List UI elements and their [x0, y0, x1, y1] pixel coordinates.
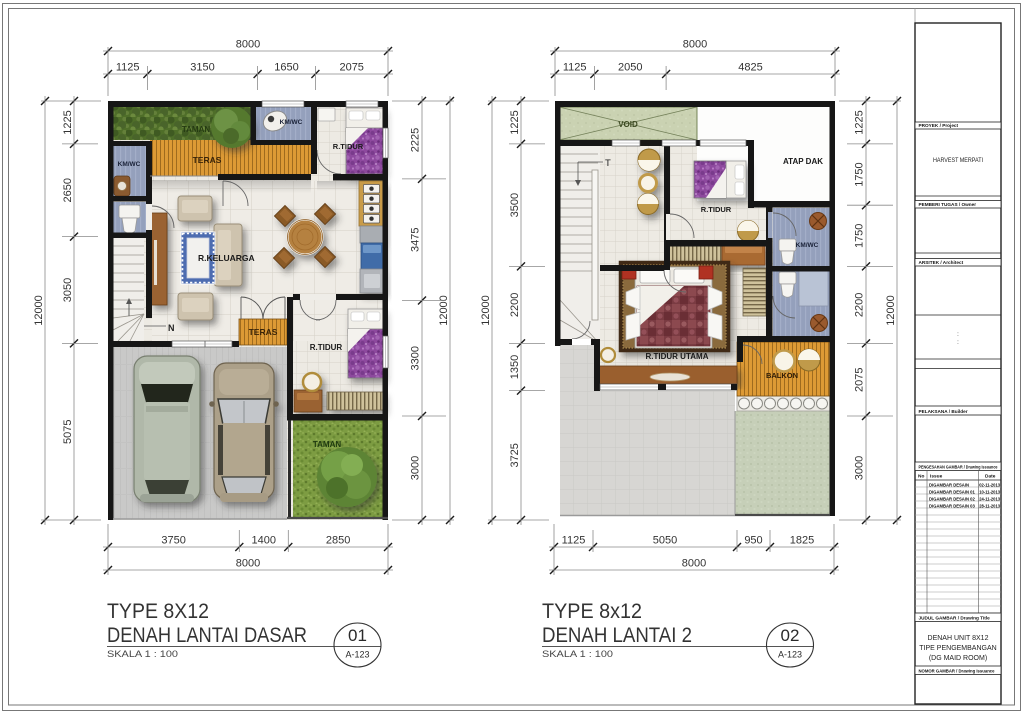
- svg-text:1125: 1125: [563, 62, 587, 74]
- svg-text:TYPE 8X12: TYPE 8X12: [107, 600, 209, 623]
- svg-text:R.TIDUR: R.TIDUR: [333, 142, 364, 151]
- svg-text:1825: 1825: [790, 535, 814, 547]
- svg-text:01: 01: [348, 626, 367, 645]
- svg-text:R.KELUARGA: R.KELUARGA: [198, 253, 255, 263]
- svg-text:3475: 3475: [410, 227, 422, 251]
- svg-text:10-11-2013: 10-11-2013: [979, 489, 1000, 494]
- svg-text:DENAH LANTAI DASAR: DENAH LANTAI DASAR: [107, 624, 307, 647]
- svg-text:1350: 1350: [509, 355, 521, 379]
- svg-text:TAMAN: TAMAN: [182, 125, 211, 134]
- svg-text:3000: 3000: [854, 456, 866, 480]
- svg-text:DENAH UNIT 8X12: DENAH UNIT 8X12: [928, 635, 989, 642]
- svg-text:R.TIDUR UTAMA: R.TIDUR UTAMA: [646, 352, 709, 361]
- svg-text:VOID: VOID: [618, 120, 638, 129]
- svg-text:Issue: Issue: [930, 474, 943, 480]
- svg-text:3150: 3150: [190, 62, 214, 74]
- svg-text:1750: 1750: [854, 224, 866, 248]
- svg-text:N: N: [168, 323, 175, 333]
- svg-text:1225: 1225: [509, 110, 521, 134]
- svg-text:1650: 1650: [274, 62, 298, 74]
- svg-text:(DG MAID ROOM): (DG MAID ROOM): [929, 655, 987, 662]
- svg-text:1225: 1225: [854, 110, 866, 134]
- svg-text:A-123: A-123: [778, 650, 802, 660]
- svg-text:T: T: [605, 158, 611, 169]
- svg-text:TYPE 8x12: TYPE 8x12: [542, 600, 642, 623]
- svg-text:24-11-2013: 24-11-2013: [979, 496, 1000, 501]
- svg-text:BALKON: BALKON: [766, 371, 798, 380]
- svg-text:DENAH LANTAI 2: DENAH LANTAI 2: [542, 624, 692, 647]
- svg-text:2200: 2200: [854, 293, 866, 317]
- svg-text:3750: 3750: [161, 535, 185, 547]
- svg-text:2200: 2200: [509, 293, 521, 317]
- svg-text:5075: 5075: [62, 419, 74, 443]
- svg-text:8000: 8000: [236, 39, 260, 51]
- svg-text:DIGAMBAR DESAIN: DIGAMBAR DESAIN: [929, 482, 969, 487]
- svg-text:R.TIDUR: R.TIDUR: [701, 205, 732, 214]
- svg-text:8000: 8000: [236, 558, 260, 570]
- svg-text:950: 950: [744, 535, 762, 547]
- svg-text:KM/WC: KM/WC: [118, 161, 141, 168]
- svg-text:DIGAMBAR DESAIN 01: DIGAMBAR DESAIN 01: [929, 489, 976, 494]
- svg-text:12000: 12000: [885, 295, 897, 326]
- svg-text:KM/WC: KM/WC: [280, 119, 303, 126]
- svg-text:PELAKSANA / Builder: PELAKSANA / Builder: [919, 409, 968, 414]
- svg-text:2850: 2850: [326, 535, 350, 547]
- svg-text:TERAS: TERAS: [249, 327, 278, 337]
- svg-text:02-11-2013: 02-11-2013: [979, 482, 1000, 487]
- svg-text:ARSITEK / Architect: ARSITEK / Architect: [919, 260, 964, 265]
- svg-text:3300: 3300: [410, 346, 422, 370]
- svg-text:3725: 3725: [509, 443, 521, 467]
- svg-text:TIPE PENGEMBANGAN: TIPE PENGEMBANGAN: [919, 645, 996, 652]
- svg-text:2225: 2225: [410, 128, 422, 152]
- svg-text:JUDUL GAMBAR / Drawing Title: JUDUL GAMBAR / Drawing Title: [919, 616, 991, 621]
- svg-text:12000: 12000: [480, 295, 492, 326]
- svg-text:3500: 3500: [509, 193, 521, 217]
- svg-text:1400: 1400: [252, 535, 276, 547]
- svg-text:PROYEK / Project: PROYEK / Project: [919, 123, 959, 128]
- svg-text:28-11-2013: 28-11-2013: [979, 503, 1000, 508]
- svg-text:DIGAMBAR DESAIN 02: DIGAMBAR DESAIN 02: [929, 496, 976, 501]
- svg-text:PENGESAHAN GAMBAR / Drawing I: PENGESAHAN GAMBAR / Drawing Issuance: [919, 465, 998, 470]
- svg-text:4825: 4825: [738, 62, 762, 74]
- svg-text:1125: 1125: [116, 62, 140, 74]
- svg-text:Date: Date: [985, 474, 996, 480]
- svg-text:SKALA 1 : 100: SKALA 1 : 100: [542, 649, 613, 660]
- svg-text:SKALA 1 : 100: SKALA 1 : 100: [107, 649, 178, 660]
- svg-text:R.TIDUR: R.TIDUR: [310, 343, 343, 352]
- svg-text:No: No: [918, 474, 924, 480]
- svg-text:A-123: A-123: [345, 650, 369, 660]
- svg-text:ATAP DAK: ATAP DAK: [783, 157, 823, 166]
- svg-text:KM/WC: KM/WC: [796, 242, 819, 249]
- svg-text:1225: 1225: [62, 110, 74, 134]
- svg-text:12000: 12000: [438, 295, 450, 326]
- svg-text:5050: 5050: [653, 535, 677, 547]
- svg-text:8000: 8000: [682, 558, 706, 570]
- svg-text:2050: 2050: [618, 62, 642, 74]
- svg-text:HARVEST MERPATI: HARVEST MERPATI: [933, 157, 983, 164]
- svg-text:2075: 2075: [339, 62, 363, 74]
- svg-text:TERAS: TERAS: [193, 155, 222, 165]
- svg-text:02: 02: [781, 626, 800, 645]
- svg-text:1750: 1750: [854, 162, 866, 186]
- svg-text:DIGAMBAR DESAIN 03: DIGAMBAR DESAIN 03: [929, 503, 976, 508]
- svg-text:1125: 1125: [562, 535, 586, 547]
- svg-text:12000: 12000: [33, 295, 45, 326]
- svg-text:NOMOR GAMBAR / Drawing Issuanc: NOMOR GAMBAR / Drawing Issuance: [919, 669, 995, 674]
- svg-text:PEMBERI TUGAS / Owner: PEMBERI TUGAS / Owner: [919, 202, 977, 207]
- svg-text:3000: 3000: [410, 456, 422, 480]
- svg-text:TAMAN: TAMAN: [313, 440, 342, 449]
- svg-text:2650: 2650: [62, 178, 74, 202]
- svg-text:3050: 3050: [62, 278, 74, 302]
- svg-text:8000: 8000: [683, 39, 707, 51]
- svg-text:2075: 2075: [854, 367, 866, 391]
